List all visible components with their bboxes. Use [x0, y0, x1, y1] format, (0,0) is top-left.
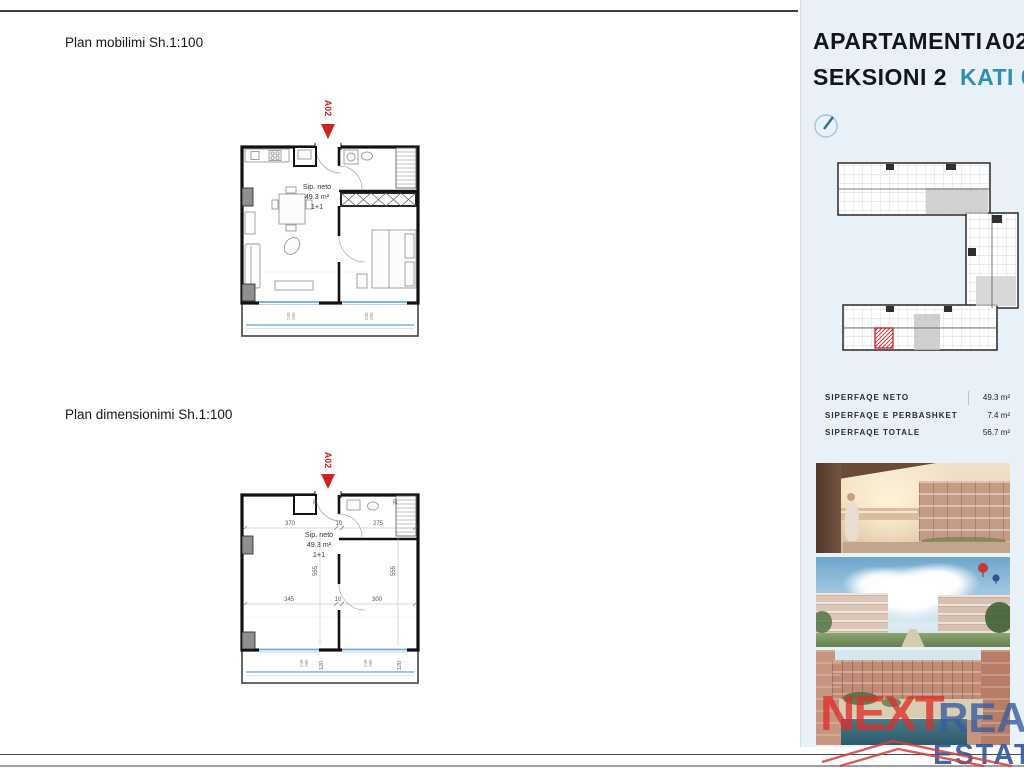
render-photo-balcony-sea	[816, 463, 1010, 553]
plan2-unit-marker-arrow	[321, 474, 335, 489]
area-row-neto: SIPERFAQE NETO 49.3 m²	[825, 390, 1010, 406]
area-value: 56.7 m²	[983, 428, 1010, 437]
plan-sheet: Plan mobilimi Sh.1:100 Plan dimensionimi…	[0, 0, 1024, 768]
svg-text:280: 280	[369, 312, 374, 320]
area-divider	[968, 391, 969, 405]
plan1-title: Plan mobilimi Sh.1:100	[65, 35, 203, 50]
render-photo-courtyard-balloons	[816, 557, 1010, 647]
svg-text:370: 370	[285, 521, 296, 527]
area-label: SIPERFAQE E PERBASHKET	[825, 411, 958, 420]
area-label: SIPERFAQE NETO	[825, 393, 909, 402]
svg-text:280: 280	[304, 659, 309, 667]
svg-text:10: 10	[336, 521, 343, 527]
plan2-unit-marker-label: A02	[323, 452, 333, 469]
hot-air-balloons	[816, 557, 1010, 647]
svg-text:120: 120	[397, 661, 403, 670]
svg-text:555: 555	[391, 565, 397, 576]
svg-text:1+1: 1+1	[311, 202, 323, 211]
sheet-top-rule	[0, 10, 798, 12]
person-figure	[847, 493, 855, 501]
svg-text:49.3 m²: 49.3 m²	[305, 192, 330, 201]
panel-divider	[800, 0, 801, 747]
panel-subtitle-section: SEKSIONI 2	[813, 64, 947, 91]
svg-text:120: 120	[319, 661, 325, 670]
north-compass-icon	[812, 110, 844, 142]
plan-dimensionimi-drawing: A02	[239, 446, 421, 688]
svg-text:280: 280	[291, 312, 296, 320]
area-value: 7.4 m²	[987, 411, 1010, 420]
footer-rule-dark	[0, 754, 1024, 755]
svg-text:Sip. neto: Sip. neto	[303, 182, 331, 191]
svg-text:280: 280	[368, 659, 373, 667]
plan1-wardrobe-hatch	[341, 193, 416, 206]
plan1-unit-marker-label: A02	[323, 100, 333, 117]
panel-subtitle-floor: KATI 0	[960, 64, 1024, 91]
footer-rule-gray	[0, 765, 1024, 767]
area-value: 49.3 m²	[983, 393, 1010, 402]
area-label: SIPERFAQE TOTALE	[825, 428, 920, 437]
area-table: SIPERFAQE NETO 49.3 m² SIPERFAQE E PERBA…	[825, 390, 1010, 442]
plan1-unit-marker-arrow	[321, 124, 335, 139]
plan-mobilimi-drawing: A02	[239, 94, 421, 340]
svg-text:555: 555	[313, 565, 319, 576]
svg-text:345: 345	[284, 597, 295, 603]
area-row-perbashket: SIPERFAQE E PERBASHKET 7.4 m²	[825, 408, 1010, 424]
pool	[841, 718, 967, 745]
plan2-title: Plan dimensionimi Sh.1:100	[65, 407, 232, 422]
svg-text:300: 300	[372, 597, 383, 603]
svg-text:1+1: 1+1	[313, 550, 325, 559]
svg-text:10: 10	[335, 597, 342, 603]
svg-text:Sip. neto: Sip. neto	[305, 530, 333, 539]
panel-title-unit: A02	[985, 28, 1024, 55]
building-key-plan	[826, 156, 1022, 356]
panel-title-word: APARTAMENTI	[813, 28, 982, 55]
svg-text:275: 275	[373, 521, 384, 527]
svg-text:49.3 m²: 49.3 m²	[307, 540, 332, 549]
highlighted-unit-a02	[875, 328, 893, 348]
svg-text:20: 20	[313, 499, 319, 505]
svg-text:20: 20	[393, 499, 399, 505]
area-row-totale: SIPERFAQE TOTALE 56.7 m²	[825, 425, 1010, 441]
render-photo-pool-courtyard	[816, 650, 1010, 745]
